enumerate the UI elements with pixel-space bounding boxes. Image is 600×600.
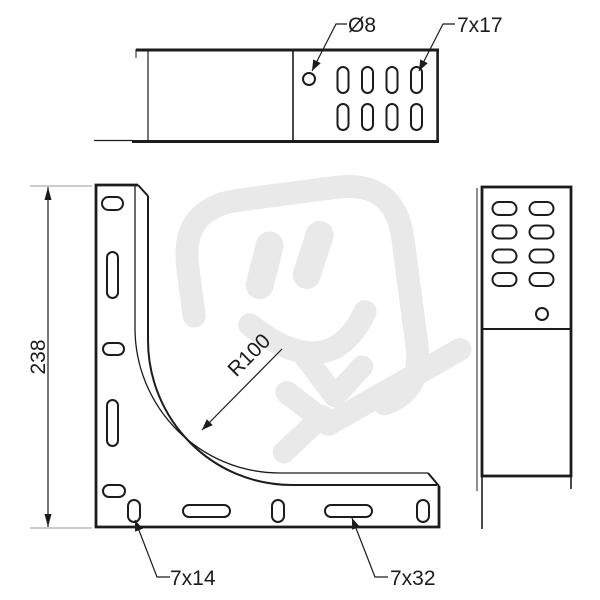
slot-hole [493,226,517,239]
slot-hole [411,104,422,130]
slot-hole [530,250,554,263]
dimension-overall-height: 238 [27,186,92,528]
dimension-arrow-down [45,514,52,527]
slot-hole [530,226,554,239]
round-hole [303,73,315,85]
label-slot-7x32: 7x32 [390,567,436,590]
slot-hole [325,505,372,517]
leader-slot-7x14 [135,520,170,577]
plug-pin [280,416,327,452]
slot-hole [338,67,349,93]
label-slot-top: 7x17 [457,14,503,37]
slot-hole [103,343,124,355]
slot-hole [362,67,373,93]
slot-hole [387,104,398,130]
technical-drawing: Ø8 7x17 R100 7x14 7x32 238 [0,0,600,600]
slot-hole-7x32 [183,505,230,517]
slot-hole [338,104,349,130]
slot-hole [107,252,118,298]
slot-hole [272,500,284,522]
label-slot-7x14: 7x14 [170,567,216,590]
slot-hole [102,197,123,210]
label-hole-dia: Ø8 [348,14,376,37]
label-overall-height: 238 [27,339,50,374]
slot-hole [387,67,398,93]
slot-hole [103,485,125,497]
slot-hole [417,500,429,522]
front-view-top-bevel [138,185,148,196]
slot-hole-7x14 [128,500,140,522]
side-view [477,187,571,529]
left-eye [255,245,275,285]
right-eye [302,235,325,275]
drawing-canvas: Ø8 7x17 R100 7x14 7x32 238 [0,0,600,600]
slot-hole [411,67,422,93]
round-hole [536,308,548,320]
slot-hole [107,400,118,446]
leader-hole-dia [312,24,347,71]
top-view: Ø8 7x17 [94,14,503,142]
slot-hole [493,202,517,215]
slot-hole [362,104,373,130]
slot-hole [530,273,554,286]
plug-smiley-watermark-icon [180,174,470,462]
dimension-arrow-up [45,187,52,200]
slot-hole [493,250,517,263]
slot-hole [530,202,554,215]
slot-hole [493,273,517,286]
